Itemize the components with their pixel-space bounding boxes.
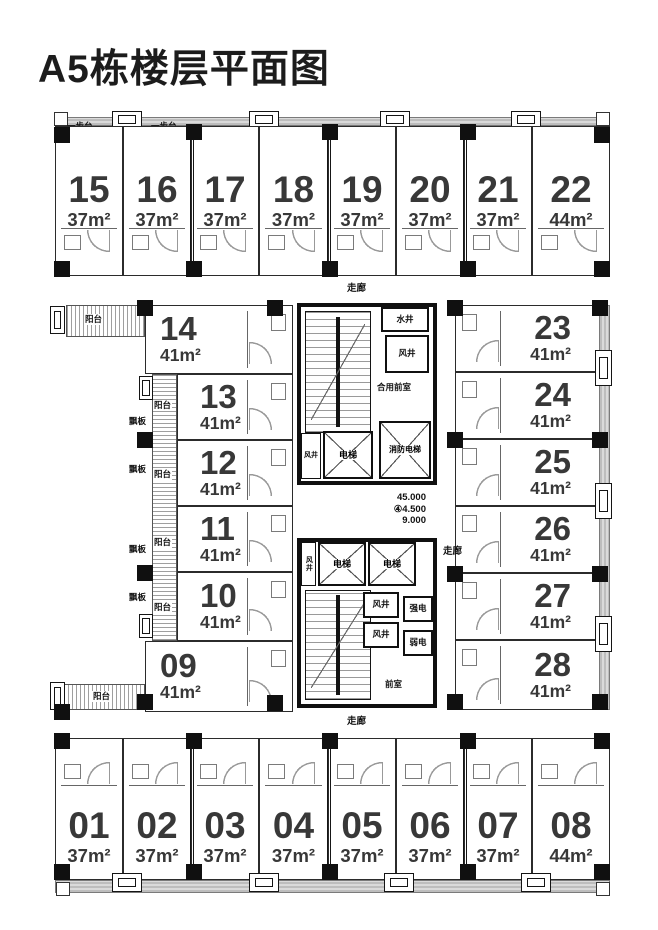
unit-number: 21	[477, 171, 518, 208]
unit-number: 12	[200, 446, 237, 479]
unit-area: 41m²	[160, 345, 201, 367]
unit-area: 44m²	[549, 208, 592, 231]
unit-number: 24	[534, 378, 571, 411]
bathroom	[470, 742, 526, 786]
unit-24: 24 41m²	[455, 372, 600, 439]
unit-number: 14	[160, 312, 197, 345]
unit-13: 13 41m²	[177, 374, 293, 440]
column-marker	[54, 704, 70, 720]
unit-25: 25 41m²	[455, 439, 600, 506]
air-shaft: 风井	[363, 592, 399, 618]
column-marker	[54, 733, 70, 749]
front-room-label: 前室	[385, 678, 402, 690]
window-symbol	[595, 483, 612, 519]
column-marker	[137, 432, 153, 448]
balcony-label: 阳台	[84, 314, 103, 325]
unit-04: 04 37m²	[259, 738, 328, 880]
column-marker	[460, 124, 476, 140]
core-lower: 风井 电梯 电梯 风井 风井 强电 弱电 前室	[297, 538, 437, 708]
eave-panel-label: 飘板	[128, 592, 147, 603]
unit-number: 17	[204, 171, 245, 208]
fire-elevator-label: 消防电梯	[387, 445, 423, 455]
unit-01: 01 37m²	[55, 738, 123, 880]
unit-27: 27 41m²	[455, 573, 600, 640]
strong-electric-room: 强电	[403, 596, 433, 622]
structural-joint	[190, 744, 194, 876]
unit-21: 21 37m²	[464, 126, 532, 276]
fire-elevator: 消防电梯	[379, 421, 431, 479]
window-symbol	[595, 616, 612, 652]
elevation-line: 45.000	[366, 492, 426, 504]
column-marker	[186, 124, 202, 140]
window-symbol	[139, 614, 153, 638]
air-shaft: 风井	[301, 433, 321, 479]
unit-number: 25	[534, 445, 571, 478]
bathroom	[459, 512, 501, 567]
structural-joint	[463, 744, 467, 876]
unit-area: 41m²	[200, 479, 241, 501]
bathroom	[197, 742, 253, 786]
column-marker	[594, 733, 610, 749]
balcony-14	[66, 305, 145, 337]
column-marker	[137, 694, 153, 710]
unit-08: 08 44m²	[532, 738, 610, 880]
air-shaft: 风井	[301, 542, 316, 586]
unit-10: 10 41m²	[177, 572, 293, 641]
column-marker	[447, 694, 463, 710]
unit-22: 22 44m²	[532, 126, 610, 276]
column-marker	[267, 300, 283, 316]
unit-area: 37m²	[476, 208, 519, 231]
corner-box	[596, 882, 610, 896]
unit-number: 01	[68, 807, 109, 844]
eave-panel-label: 飘板	[128, 416, 147, 427]
unit-number: 20	[409, 171, 450, 208]
eave-panel-label: 飘板	[128, 544, 147, 555]
bathroom	[470, 228, 526, 272]
column-marker	[322, 733, 338, 749]
balcony-strip	[152, 374, 177, 641]
corner-box	[596, 112, 610, 126]
column-marker	[460, 733, 476, 749]
column-marker	[137, 300, 153, 316]
unit-area: 41m²	[530, 612, 571, 634]
unit-19: 19 37m²	[328, 126, 396, 276]
stairs	[305, 590, 371, 700]
column-marker	[592, 300, 608, 316]
elevator-label: 电梯	[331, 559, 353, 570]
unit-number: 06	[409, 807, 450, 844]
unit-area: 37m²	[340, 208, 383, 231]
unit-number: 02	[136, 807, 177, 844]
column-marker	[460, 261, 476, 277]
unit-area: 37m²	[408, 844, 451, 867]
unit-area: 37m²	[476, 844, 519, 867]
structural-joint	[327, 744, 331, 876]
unit-area: 44m²	[549, 844, 592, 867]
page-title: A5栋楼层平面图	[38, 50, 330, 89]
unit-number: 05	[341, 807, 382, 844]
unit-number: 28	[534, 648, 571, 681]
window-symbol	[384, 873, 414, 892]
column-marker	[447, 432, 463, 448]
unit-area: 37m²	[135, 844, 178, 867]
unit-area: 41m²	[200, 413, 241, 435]
unit-area: 41m²	[530, 344, 571, 366]
bathroom	[334, 228, 390, 272]
unit-number: 16	[136, 171, 177, 208]
column-marker	[186, 864, 202, 880]
unit-area: 37m²	[67, 208, 110, 231]
column-marker	[447, 300, 463, 316]
column-marker	[137, 565, 153, 581]
elevation-line: ④4.500	[366, 504, 426, 516]
window-symbol	[139, 376, 153, 400]
column-marker	[322, 864, 338, 880]
column-marker	[447, 566, 463, 582]
eave-panel-label: 飘板	[128, 464, 147, 475]
bathroom	[459, 445, 501, 500]
window-symbol	[112, 873, 142, 892]
unit-area: 41m²	[200, 545, 241, 567]
column-marker	[54, 127, 70, 143]
water-shaft: 水井	[381, 307, 429, 332]
column-marker	[592, 694, 608, 710]
unit-03: 03 37m²	[191, 738, 259, 880]
unit-number: 27	[534, 579, 571, 612]
column-marker	[322, 261, 338, 277]
unit-15: 15 37m²	[55, 126, 123, 276]
column-marker	[594, 261, 610, 277]
column-marker	[186, 261, 202, 277]
column-marker	[594, 864, 610, 880]
elevation-marks: 45.000 ④4.500 9.000	[366, 492, 426, 527]
unit-area: 37m²	[272, 208, 315, 231]
unit-area: 41m²	[160, 682, 201, 704]
unit-number: 13	[200, 380, 237, 413]
bathroom	[402, 228, 458, 272]
unit-number: 26	[534, 512, 571, 545]
column-marker	[594, 127, 610, 143]
corridor-label: 走廊	[346, 716, 367, 728]
air-shaft: 风井	[363, 622, 399, 648]
bathroom	[247, 446, 289, 500]
corridor-label: 走廊	[442, 546, 463, 558]
elevator: 电梯	[368, 542, 416, 586]
unit-07: 07 37m²	[464, 738, 532, 880]
bathroom	[459, 579, 501, 634]
unit-number: 09	[160, 649, 197, 682]
unit-05: 05 37m²	[328, 738, 396, 880]
unit-11: 11 41m²	[177, 506, 293, 572]
bathroom	[265, 228, 322, 272]
bathroom	[129, 228, 185, 272]
unit-area: 41m²	[200, 612, 241, 634]
column-marker	[186, 733, 202, 749]
bathroom	[459, 311, 501, 366]
bathroom	[265, 742, 322, 786]
unit-area: 37m²	[272, 844, 315, 867]
elevator-label: 电梯	[381, 559, 403, 570]
elevation-line: 9.000	[366, 515, 426, 527]
structural-joint	[463, 130, 467, 270]
unit-number: 15	[68, 171, 109, 208]
unit-20: 20 37m²	[396, 126, 464, 276]
column-marker	[592, 566, 608, 582]
balcony-label: 阳台	[92, 691, 111, 702]
column-marker	[322, 124, 338, 140]
unit-area: 37m²	[340, 844, 383, 867]
bathroom	[129, 742, 185, 786]
bathroom	[402, 742, 458, 786]
air-shaft: 风井	[385, 335, 429, 373]
core-upper: 水井 风井 合用前室 电梯 消防电梯 风井	[297, 303, 437, 485]
elevator: 电梯	[323, 431, 373, 479]
unit-number: 22	[550, 171, 591, 208]
unit-06: 06 37m²	[396, 738, 464, 880]
unit-18: 18 37m²	[259, 126, 328, 276]
unit-17: 17 37m²	[191, 126, 259, 276]
elevator: 电梯	[318, 542, 366, 586]
balcony-label: 阳台	[153, 537, 172, 548]
corner-box	[56, 882, 70, 896]
unit-28: 28 41m²	[455, 640, 600, 710]
balcony-label: 阳台	[153, 469, 172, 480]
bathroom	[247, 380, 289, 434]
bathroom	[334, 742, 390, 786]
bathroom	[247, 311, 289, 368]
structural-joint	[327, 130, 331, 270]
unit-16: 16 37m²	[123, 126, 191, 276]
unit-26: 26 41m²	[455, 506, 600, 573]
unit-area: 37m²	[408, 208, 451, 231]
unit-area: 37m²	[203, 844, 246, 867]
window-symbol	[521, 873, 551, 892]
column-marker	[592, 432, 608, 448]
unit-area: 41m²	[530, 411, 571, 433]
unit-12: 12 41m²	[177, 440, 293, 506]
column-marker	[460, 864, 476, 880]
window-symbol	[50, 306, 65, 334]
structural-joint	[190, 130, 194, 270]
corridor-label: 走廊	[346, 283, 367, 295]
bathroom	[247, 512, 289, 566]
bathroom	[459, 646, 501, 704]
unit-number: 23	[534, 311, 571, 344]
bathroom	[247, 578, 289, 635]
stairs	[305, 311, 371, 433]
unit-number: 18	[273, 171, 314, 208]
unit-number: 10	[200, 579, 237, 612]
unit-number: 04	[273, 807, 314, 844]
elevator-label: 电梯	[337, 450, 359, 461]
unit-number: 11	[200, 512, 235, 545]
unit-area: 37m²	[203, 208, 246, 231]
bathroom	[197, 228, 253, 272]
column-marker	[267, 695, 283, 711]
floor-plan-page: A5栋楼层平面图 一步台 一步台 15 37m² 16 37m² 17 37m²…	[0, 0, 658, 930]
column-marker	[54, 864, 70, 880]
column-marker	[54, 261, 70, 277]
unit-number: 08	[550, 807, 591, 844]
unit-area: 41m²	[530, 545, 571, 567]
window-symbol	[249, 873, 279, 892]
unit-02: 02 37m²	[123, 738, 191, 880]
unit-number: 07	[477, 807, 518, 844]
balcony-label: 阳台	[153, 602, 172, 613]
bathroom	[459, 378, 501, 433]
window-symbol	[595, 350, 612, 386]
weak-electric-room: 弱电	[403, 630, 433, 656]
unit-area: 41m²	[530, 681, 571, 703]
shared-front-room-label: 合用前室	[377, 381, 411, 393]
balcony-label: 阳台	[153, 400, 172, 411]
unit-23: 23 41m²	[455, 305, 600, 372]
unit-number: 19	[341, 171, 382, 208]
unit-area: 41m²	[530, 478, 571, 500]
unit-number: 03	[204, 807, 245, 844]
unit-area: 37m²	[135, 208, 178, 231]
unit-area: 37m²	[67, 844, 110, 867]
